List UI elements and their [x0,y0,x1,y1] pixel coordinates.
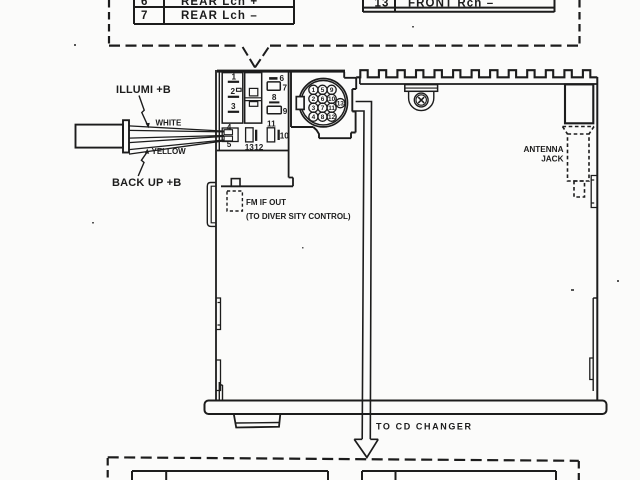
svg-text:5: 5 [227,140,232,149]
svg-text:1: 1 [312,87,316,94]
svg-text:2: 2 [312,96,316,103]
svg-text:5: 5 [321,87,325,94]
svg-text:ANTENNA: ANTENNA [523,145,563,154]
svg-text:13: 13 [375,0,390,10]
svg-text:4: 4 [312,114,316,121]
svg-text:7: 7 [283,84,288,93]
svg-text:10: 10 [280,131,290,140]
svg-text:9: 9 [283,107,288,116]
svg-text:REAR Lch +: REAR Lch + [181,0,258,8]
svg-text:6: 6 [280,74,285,83]
svg-text:FRONT Rch –: FRONT Rch – [408,0,494,10]
svg-text:12: 12 [254,143,264,152]
svg-text:6: 6 [321,96,325,103]
svg-text:FM IF OUT: FM IF OUT [246,198,286,207]
svg-text:(TO DIVER SITY CONTROL): (TO DIVER SITY CONTROL) [246,212,351,221]
svg-text:3: 3 [312,105,316,112]
svg-text:WHITE: WHITE [156,119,182,128]
svg-text:6: 6 [141,0,149,8]
svg-text:11: 11 [328,105,335,112]
svg-text:9: 9 [330,87,334,94]
svg-text:2: 2 [231,87,236,96]
svg-text:8: 8 [272,93,277,102]
svg-text:8: 8 [321,114,325,121]
svg-text:4: 4 [227,123,232,132]
svg-text:YELLOW: YELLOW [152,147,187,156]
svg-text:REAR Lch –: REAR Lch – [181,10,258,22]
svg-text:13: 13 [337,101,345,108]
svg-text:TO CD CHANGER: TO CD CHANGER [376,422,473,432]
svg-text:12: 12 [328,114,336,121]
svg-text:ILLUMI +B: ILLUMI +B [116,84,171,96]
svg-text:13: 13 [245,143,255,152]
svg-text:11: 11 [267,120,276,129]
svg-text:1: 1 [232,72,237,81]
svg-text:BACK UP +B: BACK UP +B [112,177,181,189]
svg-text:7: 7 [141,10,149,22]
svg-text:7: 7 [321,105,325,112]
svg-text:3: 3 [231,102,236,111]
svg-text:10: 10 [328,96,336,103]
svg-text:JACK: JACK [541,154,563,163]
